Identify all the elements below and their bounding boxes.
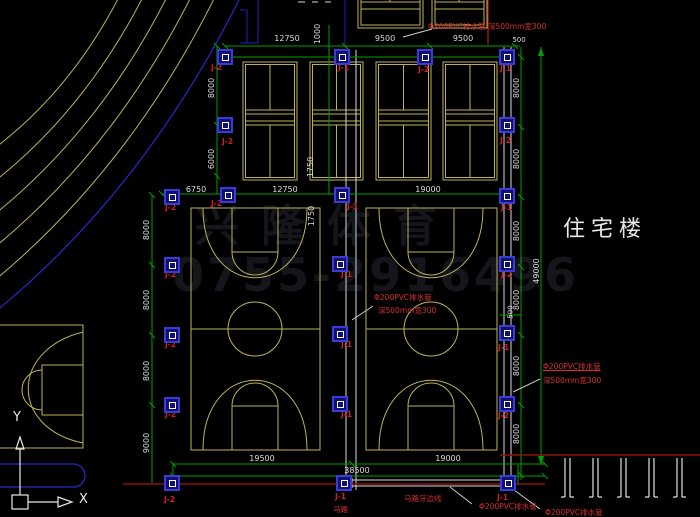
- drain-tag: J-2: [500, 137, 511, 145]
- watermark-text: 兴隆体育: [195, 205, 459, 249]
- catch-basin-icon: [500, 475, 516, 491]
- pipe-annotation: Φ200PVC排水管: [374, 294, 432, 302]
- pipe-annotation: 马路牙边线: [404, 495, 442, 503]
- dimension-label: 1000: [314, 24, 322, 44]
- dimension-label: 9500: [375, 35, 395, 43]
- catch-basin-icon: [164, 475, 180, 491]
- dimension-label: 8000: [513, 221, 521, 241]
- dimension-label: 12750: [274, 35, 299, 43]
- drain-tag: J-2: [164, 496, 175, 504]
- dimension-label: 19500: [249, 455, 274, 463]
- catch-basin-icon: [499, 49, 515, 65]
- dimension-label: 8000: [143, 290, 151, 310]
- drain-tag: J-1: [335, 493, 346, 501]
- dimension-label: 500: [508, 305, 515, 318]
- drain-tag: J-2: [165, 204, 176, 212]
- catch-basin-icon: [332, 396, 348, 412]
- dimension-label: 8000: [208, 78, 216, 98]
- catch-basin-icon: [417, 49, 433, 65]
- dimension-label: 8000: [513, 149, 521, 169]
- pipe-annotation: 深500mm宽300: [543, 377, 601, 385]
- building-label: 住宅楼: [563, 219, 647, 241]
- ucs-y-label: Y: [13, 411, 21, 424]
- drain-tag: J-1: [341, 411, 352, 419]
- drain-tag: J-1: [341, 341, 352, 349]
- catch-basin-icon: [499, 325, 515, 341]
- drain-tag: J-2: [501, 271, 512, 279]
- dimension-label: 9500: [453, 35, 473, 43]
- dimension-label: 19000: [435, 455, 460, 463]
- catch-basin-icon: [164, 397, 180, 413]
- dimension-label: 9000: [143, 433, 151, 453]
- catch-basin-icon: [334, 49, 350, 65]
- pipe-annotation: Φ200PVC排水管: [543, 363, 601, 371]
- catch-basin-icon: [332, 326, 348, 342]
- parking-stalls: [561, 458, 686, 497]
- track-capsule: [0, 464, 85, 487]
- drain-tag: J-2: [211, 64, 222, 72]
- dimension-label: 1750: [308, 206, 316, 226]
- catch-basin-icon: [217, 117, 233, 133]
- badminton-courts: [243, 62, 497, 180]
- dimension-label: 38500: [344, 467, 369, 475]
- dimension-label: 8000: [143, 220, 151, 240]
- catch-basin-icon: [217, 49, 233, 65]
- pipe-annotation: Φ200PVC排水管: [545, 509, 603, 517]
- dimension-label: 500: [512, 37, 525, 44]
- dimension-label: 49000: [533, 258, 541, 283]
- pipe-annotation: Φ200PVC排水管 深500mm宽300: [428, 23, 546, 31]
- dimension-label: 12750: [272, 186, 297, 194]
- drain-tag: J-2: [222, 138, 233, 146]
- catch-basin-icon: [164, 257, 180, 273]
- basketball-halfcourt-left-edge: [0, 325, 83, 448]
- drain-tag: J-2: [498, 412, 509, 420]
- catch-basin-icon: [334, 187, 350, 203]
- drain-tag: J-1: [347, 203, 358, 211]
- drain-tag: J-1: [500, 65, 511, 73]
- catch-basin-icon: [499, 117, 515, 133]
- dimension-label: 8000: [513, 356, 521, 376]
- catch-basin-icon: [332, 256, 348, 272]
- dimension-label: 8000: [143, 361, 151, 381]
- ucs-x-label: X: [79, 493, 88, 506]
- catch-basin-icon: [220, 187, 236, 203]
- catch-basin-icon: [164, 327, 180, 343]
- pipe-annotation: 深500mm宽300: [378, 307, 436, 315]
- drain-tag: J-1: [501, 204, 512, 212]
- road-curves: [0, 0, 216, 280]
- catch-basin-icon: [499, 188, 515, 204]
- catch-basin-icon: [164, 189, 180, 205]
- cad-drawing-canvas: 兴隆体育 0755-2916496 住宅楼 Y X 12750950095005…: [0, 0, 700, 517]
- drain-tag: J-1: [338, 64, 349, 72]
- pipe-annotation: Φ200PVC排水管: [479, 503, 537, 511]
- dimension-label: 8000: [513, 424, 521, 444]
- dimension-label: 19000: [415, 186, 440, 194]
- catch-basin-icon: [499, 256, 515, 272]
- drain-tag: J-1: [497, 494, 508, 502]
- drain-tag: J-2: [418, 66, 429, 74]
- dimension-label: 6000: [208, 149, 216, 169]
- catch-basin-icon: [499, 396, 515, 412]
- drain-tag: J-1: [498, 344, 509, 352]
- pipe-annotation: 马路: [333, 506, 348, 514]
- dimension-label: 8000: [513, 78, 521, 98]
- dimension-label: 1750: [307, 157, 315, 177]
- dimension-label: 6750: [186, 186, 206, 194]
- catch-basin-icon: [336, 475, 352, 491]
- drain-tag: J-1: [341, 271, 352, 279]
